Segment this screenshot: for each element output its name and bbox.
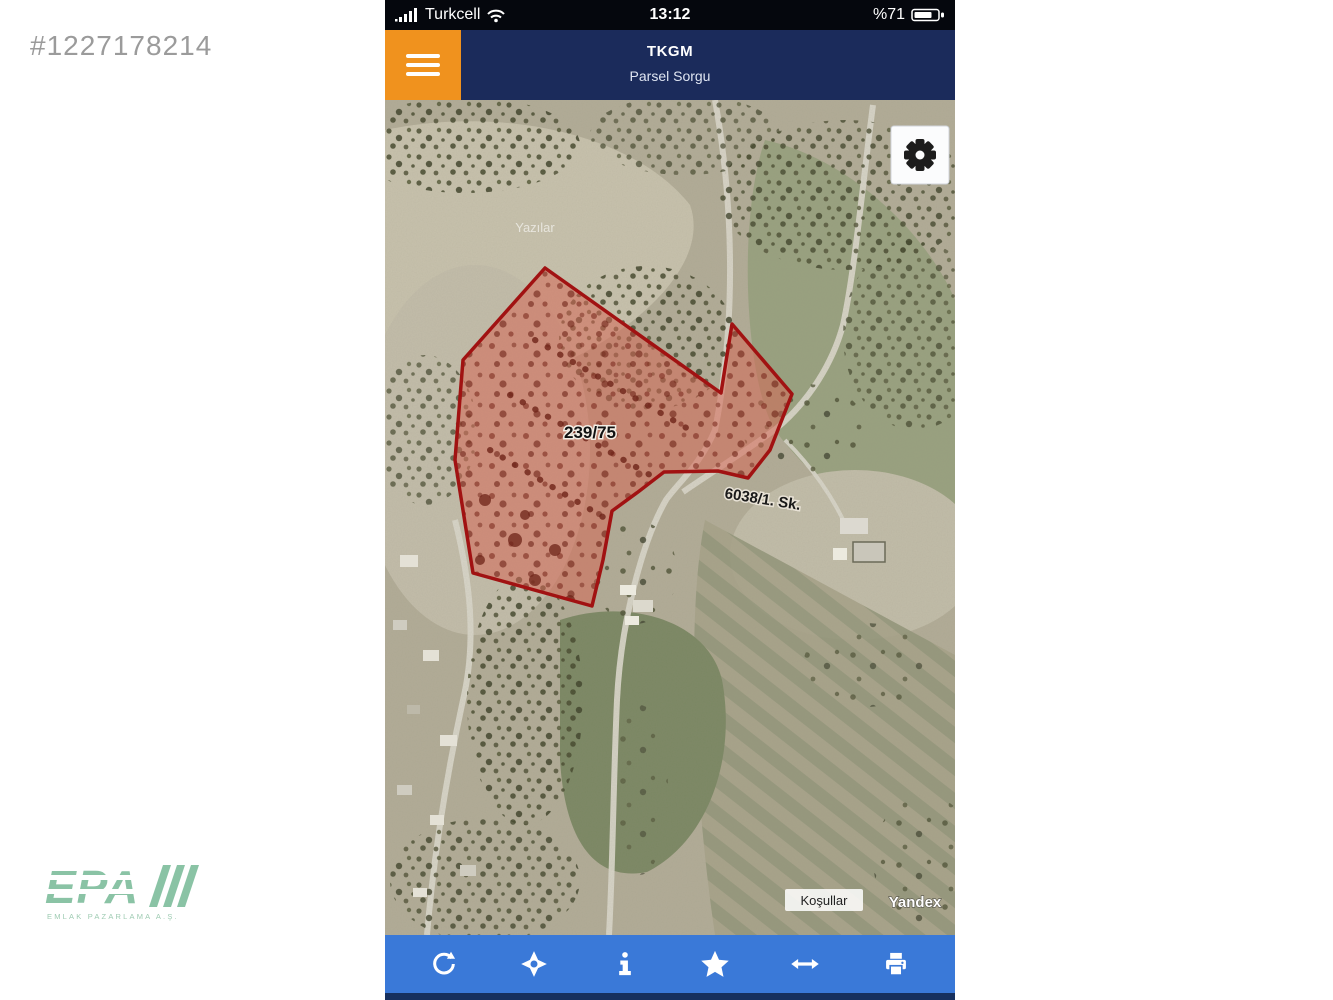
phone-screenshot: Turkcell 13:12 %71 TKGM Parsel Sorgu: [385, 0, 955, 1000]
gear-icon: [904, 139, 936, 171]
attribution-provider-logo[interactable]: Yandex: [889, 894, 942, 911]
map-container[interactable]: Yazılar 239/75 6038/1. Sk. Koşullar Yand…: [385, 100, 955, 935]
measure-button[interactable]: [777, 941, 833, 987]
place-label: Yazılar: [515, 220, 555, 235]
epa-logo-subtext: EMLAK PAZARLAMA A.Ş.: [47, 912, 179, 921]
app-subtitle: Parsel Sorgu: [385, 68, 955, 84]
measure-icon: [790, 949, 820, 979]
satellite-map[interactable]: Yazılar 239/75 6038/1. Sk. Koşullar Yand…: [385, 100, 955, 935]
attribution-terms-link[interactable]: Koşullar: [801, 893, 849, 908]
menu-button[interactable]: [385, 30, 461, 100]
info-button[interactable]: [597, 941, 653, 987]
clock: 13:12: [385, 6, 955, 24]
map-settings-button[interactable]: [891, 126, 949, 184]
favorite-button[interactable]: [687, 941, 743, 987]
locate-icon: [520, 950, 548, 978]
locate-button[interactable]: [506, 941, 562, 987]
parcel-number-label: 239/75: [564, 423, 616, 442]
status-bar: Turkcell 13:12 %71: [385, 0, 955, 30]
epa-logo-graphic: EPA EMLAK PAZARLAMA A.Ş.: [45, 865, 235, 927]
app-header: TKGM Parsel Sorgu: [385, 30, 955, 100]
star-icon: [700, 949, 730, 979]
listing-id-watermark: #1227178214: [30, 30, 212, 62]
refresh-button[interactable]: [416, 941, 472, 987]
refresh-icon: [430, 950, 458, 978]
info-icon: [611, 950, 639, 978]
app-title: TKGM: [385, 43, 955, 60]
print-icon: [882, 950, 910, 978]
print-button[interactable]: [868, 941, 924, 987]
bottom-toolbar: [385, 935, 955, 1000]
epa-logo: EPA EMLAK PAZARLAMA A.Ş.: [45, 865, 235, 932]
